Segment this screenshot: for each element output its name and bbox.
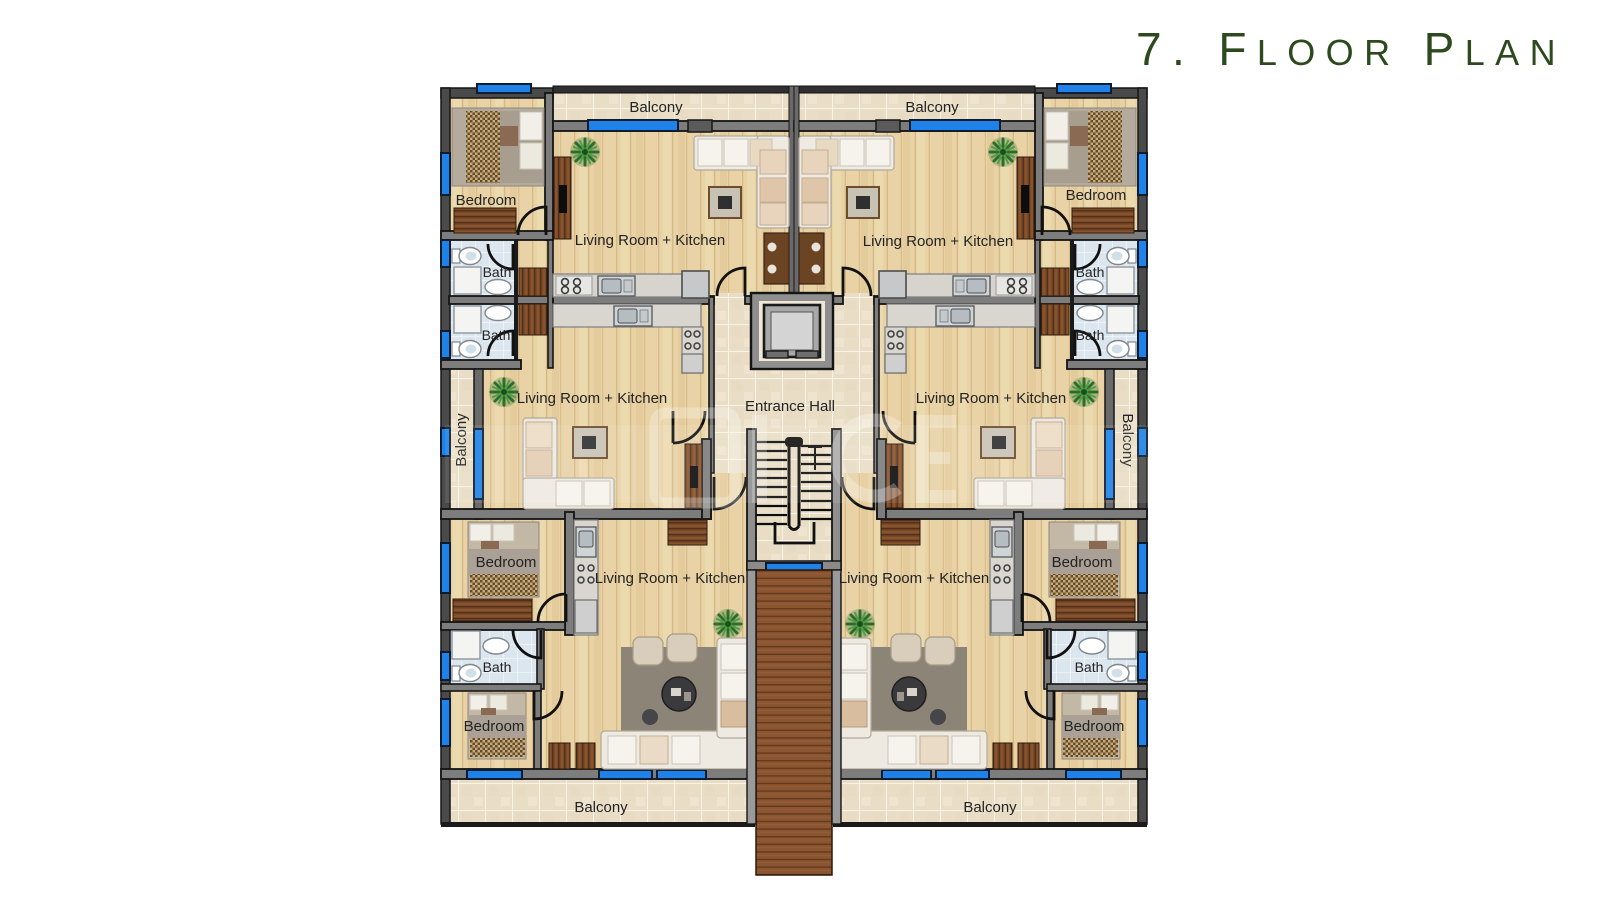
svg-text:Entrance Hall: Entrance Hall <box>745 398 835 415</box>
svg-text:Living Room + Kitchen: Living Room + Kitchen <box>839 570 990 587</box>
svg-text:Living Room + Kitchen: Living Room + Kitchen <box>595 570 746 587</box>
svg-text:Balcony: Balcony <box>629 99 683 116</box>
svg-text:Balcony: Balcony <box>574 799 628 816</box>
svg-text:Balcony: Balcony <box>963 799 1017 816</box>
svg-text:Living Room + Kitchen: Living Room + Kitchen <box>916 390 1067 407</box>
svg-text:Bedroom: Bedroom <box>456 192 517 209</box>
svg-text:Bedroom: Bedroom <box>1066 187 1127 204</box>
svg-text:Bedroom: Bedroom <box>1064 718 1125 735</box>
svg-text:Bath: Bath <box>1076 327 1105 343</box>
svg-text:Bath: Bath <box>482 327 511 343</box>
svg-text:Bedroom: Bedroom <box>476 554 537 571</box>
svg-text:Balcony: Balcony <box>905 99 959 116</box>
svg-text:Living Room + Kitchen: Living Room + Kitchen <box>517 390 668 407</box>
svg-text:Bath: Bath <box>483 264 512 280</box>
svg-text:Bedroom: Bedroom <box>1052 554 1113 571</box>
svg-text:Bath: Bath <box>1075 659 1104 675</box>
svg-text:Bath: Bath <box>483 659 512 675</box>
svg-text:Living Room + Kitchen: Living Room + Kitchen <box>575 232 726 249</box>
svg-text:Bath: Bath <box>1076 264 1105 280</box>
svg-text:Living Room + Kitchen: Living Room + Kitchen <box>863 233 1014 250</box>
svg-text:Bedroom: Bedroom <box>464 718 525 735</box>
